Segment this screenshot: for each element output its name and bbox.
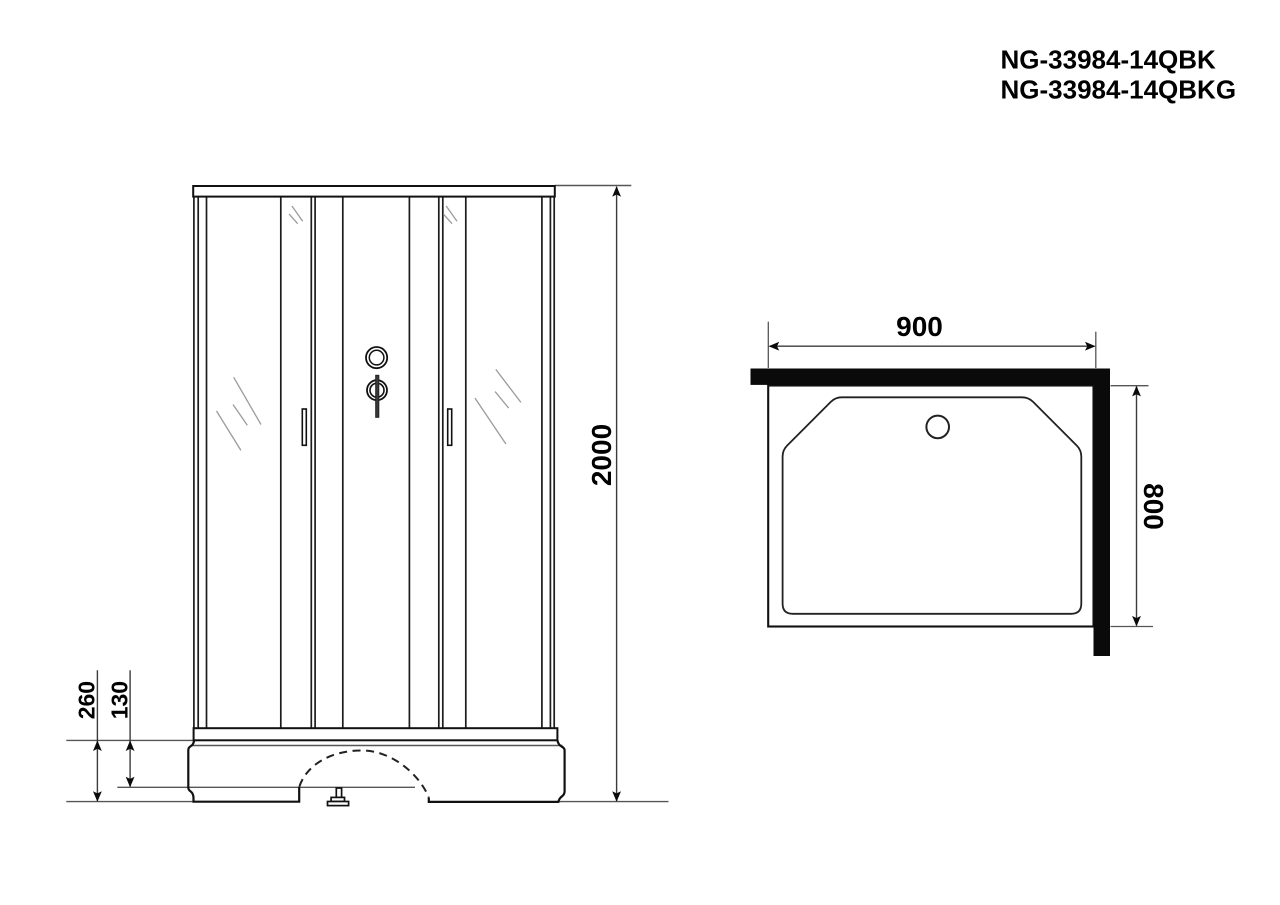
svg-text:260: 260 xyxy=(73,681,99,719)
svg-text:130: 130 xyxy=(106,681,132,719)
svg-text:NG-33984-14QBK: NG-33984-14QBK xyxy=(1001,45,1217,75)
svg-text:NG-33984-14QBKG: NG-33984-14QBKG xyxy=(1001,74,1237,104)
svg-text:2000: 2000 xyxy=(586,424,617,486)
svg-text:800: 800 xyxy=(1138,483,1169,530)
svg-text:900: 900 xyxy=(896,311,943,342)
